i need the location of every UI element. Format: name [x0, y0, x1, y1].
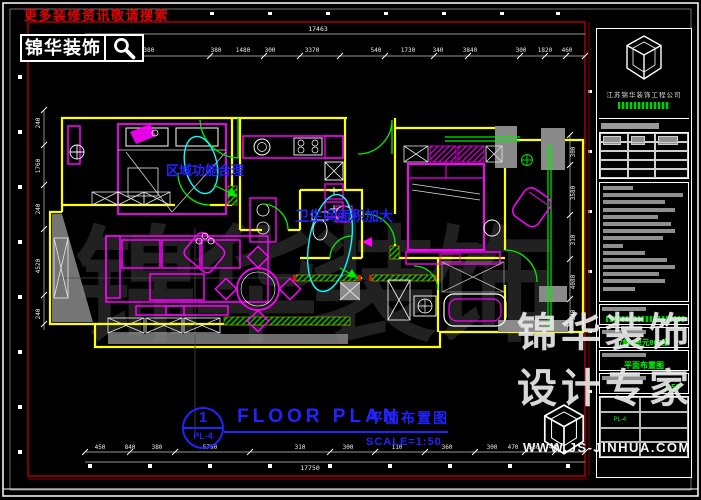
- svg-text:840: 840: [125, 444, 136, 451]
- svg-text:300: 300: [265, 47, 276, 54]
- svg-text:1480: 1480: [236, 47, 251, 54]
- watermark-line1: 锦华装饰: [517, 300, 693, 358]
- svg-text:540: 540: [371, 47, 382, 54]
- cube-logo-icon: [624, 35, 664, 81]
- svg-text:470: 470: [508, 444, 519, 451]
- svg-text:4520: 4520: [35, 258, 42, 273]
- svg-text:1820: 1820: [538, 47, 553, 54]
- drawing-title-cn: 平面布置图: [369, 408, 449, 428]
- svg-text:17750: 17750: [300, 464, 320, 472]
- svg-text:450: 450: [95, 444, 106, 451]
- svg-text:3840: 3840: [463, 47, 478, 54]
- svg-text:300: 300: [487, 444, 498, 451]
- svg-text:380: 380: [152, 444, 163, 451]
- svg-text:360: 360: [442, 444, 453, 451]
- svg-text:240: 240: [35, 308, 42, 319]
- svg-text:340: 340: [433, 47, 444, 54]
- svg-text:300: 300: [516, 47, 527, 54]
- svg-text:4080: 4080: [570, 274, 577, 289]
- title-underline: [224, 431, 448, 433]
- svg-text:460: 460: [562, 47, 573, 54]
- svg-text:3370: 3370: [305, 47, 320, 54]
- promo-slogan: 更多装修资讯敬请搜索: [24, 5, 169, 24]
- company-logo-section: 江苏锦华装饰工程公司: [599, 31, 689, 119]
- annotation-bathroom-enlarged: 卫生间面积加大: [295, 206, 393, 226]
- drawing-number: 1: [184, 409, 222, 429]
- svg-text:17463: 17463: [308, 25, 328, 33]
- brand-name: 锦华装饰: [22, 36, 104, 60]
- svg-text:240: 240: [35, 117, 42, 128]
- svg-text:310: 310: [295, 444, 306, 451]
- svg-text:1730: 1730: [401, 47, 416, 54]
- drawing-scale: SCALE=1:50: [366, 436, 442, 448]
- svg-text:1760: 1760: [35, 158, 42, 173]
- company-name: 江苏锦华装饰工程公司: [599, 89, 689, 99]
- watermark-url: WWW.JS-JINHUA.COM: [523, 440, 691, 455]
- svg-text:3580: 3580: [570, 185, 577, 200]
- svg-text:240: 240: [35, 203, 42, 214]
- sheet-number: PL-4: [600, 412, 640, 428]
- notes-section: [599, 182, 689, 302]
- svg-text:310: 310: [570, 234, 577, 245]
- drawing-sheet: 锦华装饰: [0, 0, 701, 500]
- svg-text:300: 300: [343, 444, 354, 451]
- svg-text:380: 380: [211, 47, 222, 54]
- drawing-number-bubble: 1 PL-4: [182, 407, 224, 449]
- annotation-zone-function: 区域功能合理: [166, 160, 244, 179]
- titleblock-bar: [601, 123, 659, 129]
- brand-logo: 锦华装饰: [20, 34, 144, 62]
- search-icon: [106, 36, 142, 60]
- svg-text:300: 300: [570, 146, 577, 157]
- signature-table: [599, 132, 689, 179]
- branch-name-blurred: [618, 102, 670, 109]
- sheet-code: PL-4: [184, 429, 222, 447]
